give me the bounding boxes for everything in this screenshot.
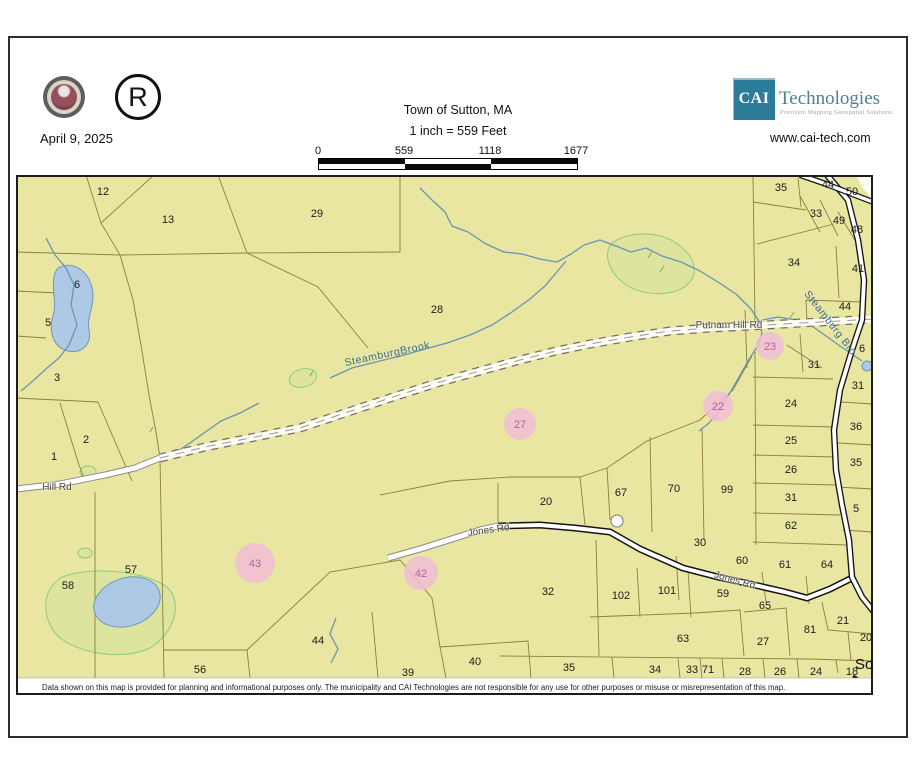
parcel-label: 56: [194, 664, 206, 676]
parcel-label: 27: [757, 636, 769, 648]
parcel-label: 50: [846, 186, 858, 198]
cai-website: www.cai-tech.com: [770, 131, 871, 145]
cai-logo-abbr: CAI: [739, 90, 770, 108]
registered-trademark-icon: R: [115, 74, 161, 120]
map-date: April 9, 2025: [40, 131, 113, 146]
parcel-label: 61: [779, 559, 791, 571]
parcel-label: 44: [312, 635, 324, 647]
scalebar-label-2: 1118: [479, 145, 502, 157]
highlight-label: 42: [415, 568, 427, 580]
parcel-label: 49: [833, 215, 845, 227]
highlight-label: 22: [712, 401, 724, 413]
parcel-label: 35: [775, 182, 787, 194]
parcel-label: 36: [850, 421, 862, 433]
parcel-label: 59: [717, 588, 729, 600]
parcel-label: 29: [311, 208, 323, 220]
parcel-label: 31: [785, 492, 797, 504]
parcel-label: 28: [739, 666, 751, 678]
parcel-label: 31: [808, 359, 820, 371]
highlight-label: 23: [764, 341, 776, 353]
parcel-label: 39: [402, 667, 414, 679]
parcel-label: 20: [540, 496, 552, 508]
parcel-label: 33: [810, 208, 822, 220]
cul-de-sac: [611, 515, 623, 527]
parcel-label: 26: [774, 666, 786, 678]
parcel-label: 35: [563, 662, 575, 674]
parcel-label: 31: [852, 380, 864, 392]
parcel-label: 20: [860, 632, 872, 644]
road-label: Hill Rd: [42, 482, 71, 493]
map-canvas[interactable]: Data shown on this map is provided for p…: [16, 175, 873, 695]
parcel-label: 24: [785, 398, 797, 410]
parcel-label: 35: [850, 457, 862, 469]
scalebar-label-1: 559: [395, 145, 413, 157]
cai-logo-tagline: Precision Mapping Geospatial Solutions: [780, 110, 892, 116]
parcel-label: 40: [469, 656, 481, 668]
parcel-label: 30: [694, 537, 706, 549]
cai-logo-name: Technologies: [779, 88, 880, 110]
parcel-label: 44: [839, 301, 851, 313]
highlight-label: 27: [514, 419, 526, 431]
parcel-label: 12: [97, 186, 109, 198]
parcel-label: 6: [859, 343, 865, 355]
parcel-label: 58: [62, 580, 74, 592]
scale-text: 1 inch = 559 Feet: [308, 124, 608, 138]
parcel-label: 5: [45, 317, 51, 329]
map-page: R April 9, 2025 Town of Sutton, MA 1 inc…: [0, 0, 916, 768]
parcel-label: 2: [83, 434, 89, 446]
parcel-label: 67: [615, 487, 627, 499]
edge-street-label: So: [855, 656, 873, 673]
parcel-label: 81: [804, 624, 816, 636]
parcel-label: 34: [788, 257, 800, 269]
scalebar-labels: 0 559 1118 1677: [0, 145, 916, 157]
parcel-label: 3: [54, 372, 60, 384]
parcel-label: 48: [851, 224, 863, 236]
parcel-label: 33: [686, 664, 698, 676]
parcel-label: 13: [162, 214, 174, 226]
parcel-label: 44: [822, 179, 834, 191]
scalebar-label-0: 0: [315, 145, 321, 157]
town-seal: [43, 76, 85, 118]
road-label: Putnam Hill Rd: [696, 320, 763, 331]
parcel-label: 63: [677, 633, 689, 645]
parcel-label: 101: [658, 585, 676, 597]
parcel-label: 41: [852, 263, 864, 275]
parcel-label: 32: [542, 586, 554, 598]
disclaimer-text: Data shown on this map is provided for p…: [42, 683, 785, 692]
parcel-label: 60: [736, 555, 748, 567]
parcel-label: 26: [785, 464, 797, 476]
parcel-label: 21: [837, 615, 849, 627]
map-title: Town of Sutton, MA: [308, 103, 608, 117]
parcel-label: 99: [721, 484, 733, 496]
parcel-label: 25: [785, 435, 797, 447]
parcel-label: 65: [759, 600, 771, 612]
scalebar-label-3: 1677: [564, 145, 588, 157]
parcel-label: 70: [668, 483, 680, 495]
parcel-label: 64: [821, 559, 833, 571]
parcel-label: 102: [612, 590, 630, 602]
parcel-map-svg[interactable]: Data shown on this map is provided for p…: [16, 175, 873, 695]
parcel-label: 28: [431, 304, 443, 316]
highlight-label: 43: [249, 558, 261, 570]
parcel-label: 5: [853, 503, 859, 515]
scale-bar: [318, 158, 578, 170]
parcel-label: 34: [649, 664, 661, 676]
parcel-label: 6: [74, 279, 80, 291]
parcel-label: 71: [702, 664, 714, 676]
parcel-label: 62: [785, 520, 797, 532]
parcel-label: 57: [125, 564, 137, 576]
parcel-label: 1: [51, 451, 57, 463]
parcel-label: 24: [810, 666, 822, 678]
cai-logo: CAI: [733, 78, 775, 120]
